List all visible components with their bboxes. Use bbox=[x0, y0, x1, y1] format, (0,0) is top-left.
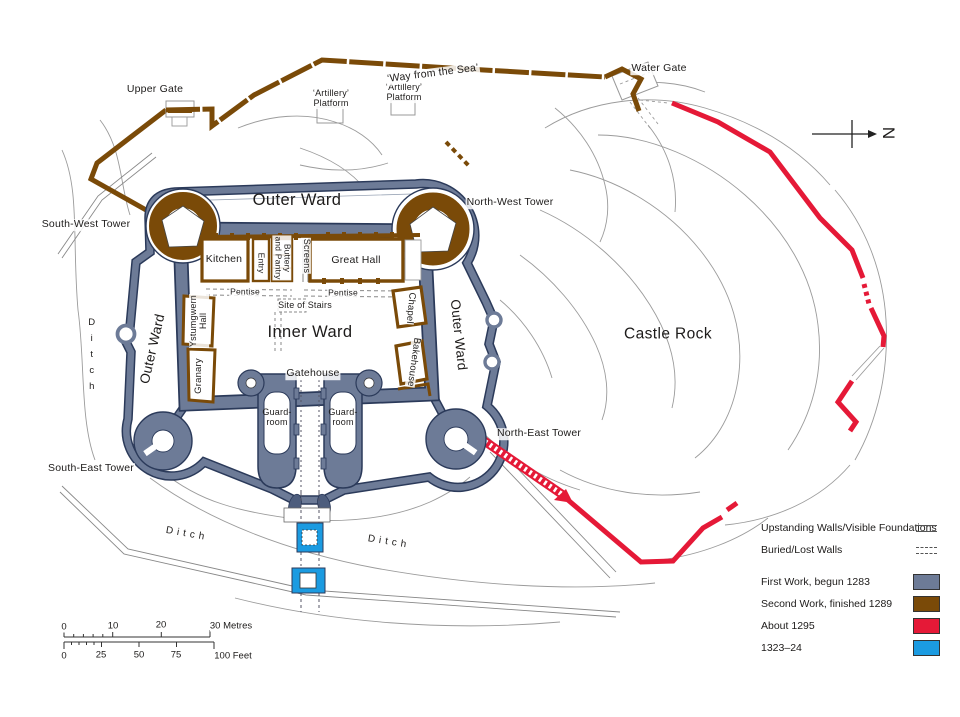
scale-feet-75: 75 bbox=[171, 650, 182, 661]
label-castle-rock: Castle Rock bbox=[623, 325, 713, 342]
label-entry: Entry bbox=[256, 252, 265, 275]
label-gatehouse: Gatehouse bbox=[285, 368, 340, 380]
legend-1323-24-swatch bbox=[913, 640, 940, 656]
label-bakehouse: Bakehouse bbox=[404, 336, 421, 388]
label-guard-room-right: Guard- room bbox=[327, 408, 358, 428]
label-screens: Screens bbox=[301, 238, 311, 274]
label-pentise-east: Pentise bbox=[327, 288, 359, 297]
legend-second-work-label: Second Work, finished 1289 bbox=[761, 598, 892, 610]
scale-metres-10: 10 bbox=[108, 621, 119, 632]
label-great-hall: Great Hall bbox=[330, 255, 381, 267]
label-pentise-west: Pentise bbox=[229, 287, 261, 296]
scale-metres-0: 0 bbox=[61, 622, 66, 633]
scale-feet-25: 25 bbox=[96, 650, 107, 661]
scale-feet-50: 50 bbox=[134, 650, 145, 661]
label-ditch-east: Ditch bbox=[366, 533, 412, 551]
label-north-east-tower: North-East Tower bbox=[496, 428, 582, 440]
label-guard-room-left: Guard- room bbox=[261, 408, 292, 428]
label-inner-ward: Inner Ward bbox=[266, 323, 353, 341]
label-kitchen: Kitchen bbox=[205, 254, 243, 266]
label-ditch-west: Ditch bbox=[85, 317, 97, 397]
label-ditch-south: Ditch bbox=[164, 525, 210, 544]
legend-second-work-swatch bbox=[913, 596, 940, 612]
label-south-east-tower: South-East Tower bbox=[47, 463, 135, 475]
label-chapel: Chapel bbox=[403, 291, 416, 325]
scale-metres-30: 30 Metres bbox=[210, 621, 252, 632]
label-buttery-and-pantry: Buttery and Pantry bbox=[273, 235, 292, 280]
label-upper-gate: Upper Gate bbox=[126, 84, 184, 96]
legend-1323-24-label: 1323–24 bbox=[761, 642, 802, 654]
legend-first-work-label: First Work, begun 1283 bbox=[761, 576, 870, 588]
label-water-gate: Water Gate bbox=[630, 63, 687, 75]
legend-upstanding-walls-symbol bbox=[916, 520, 937, 537]
legend-buried-walls-symbol bbox=[916, 542, 937, 559]
compass-north-label: N bbox=[878, 127, 898, 139]
scale-feet-100: 100 Feet bbox=[214, 651, 252, 662]
legend-first-work-swatch bbox=[913, 574, 940, 590]
label-site-of-stairs: Site of Stairs bbox=[277, 301, 333, 311]
label-ystumgwern-hall: Ystumgwern Hall bbox=[189, 294, 209, 348]
label-outer-ward-top: Outer Ward bbox=[252, 191, 343, 209]
label-way-from-the-sea: ‘Way from the Sea’ bbox=[386, 63, 481, 86]
label-granary: Granary bbox=[194, 357, 204, 395]
legend-about-1295-swatch bbox=[913, 618, 940, 634]
castle-plan-page: Upper Gate ‘Artillery’ Platform ‘Artille… bbox=[0, 0, 960, 717]
label-artillery-platform-east: ‘Artillery’ Platform bbox=[385, 83, 423, 103]
scale-feet-0: 0 bbox=[61, 651, 66, 662]
label-north-west-tower: North-West Tower bbox=[466, 197, 555, 209]
legend-buried-walls-label: Buried/Lost Walls bbox=[761, 544, 842, 556]
scale-metres-20: 20 bbox=[156, 620, 167, 631]
label-outer-ward-left: Outer Ward bbox=[138, 312, 169, 387]
label-south-west-tower: South-West Tower bbox=[41, 219, 132, 231]
legend-upstanding-walls-label: Upstanding Walls/Visible Foundations bbox=[761, 522, 937, 534]
label-artillery-platform-west: ‘Artillery’ Platform bbox=[312, 89, 350, 109]
legend-about-1295-label: About 1295 bbox=[761, 620, 815, 632]
label-outer-ward-right: Outer Ward bbox=[447, 298, 469, 372]
label-layer: Upper Gate ‘Artillery’ Platform ‘Artille… bbox=[0, 0, 960, 717]
